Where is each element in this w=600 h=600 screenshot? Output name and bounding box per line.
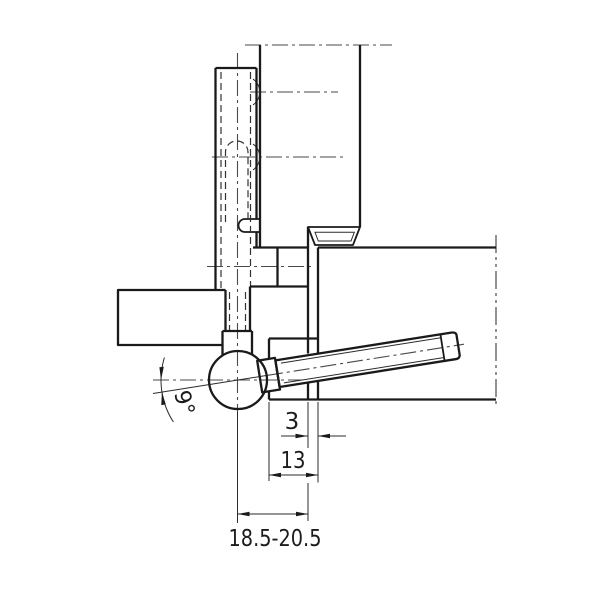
drawing-background bbox=[0, 0, 600, 600]
dim3-label: 3 bbox=[285, 409, 300, 435]
drawing-canvas: 9° 3 13 18.5-20.5 bbox=[0, 0, 600, 600]
dim-range-label: 18.5-20.5 bbox=[229, 526, 322, 552]
hinge-technical-drawing: 9° 3 13 18.5-20.5 bbox=[0, 0, 600, 600]
dim13-label: 13 bbox=[281, 448, 306, 474]
